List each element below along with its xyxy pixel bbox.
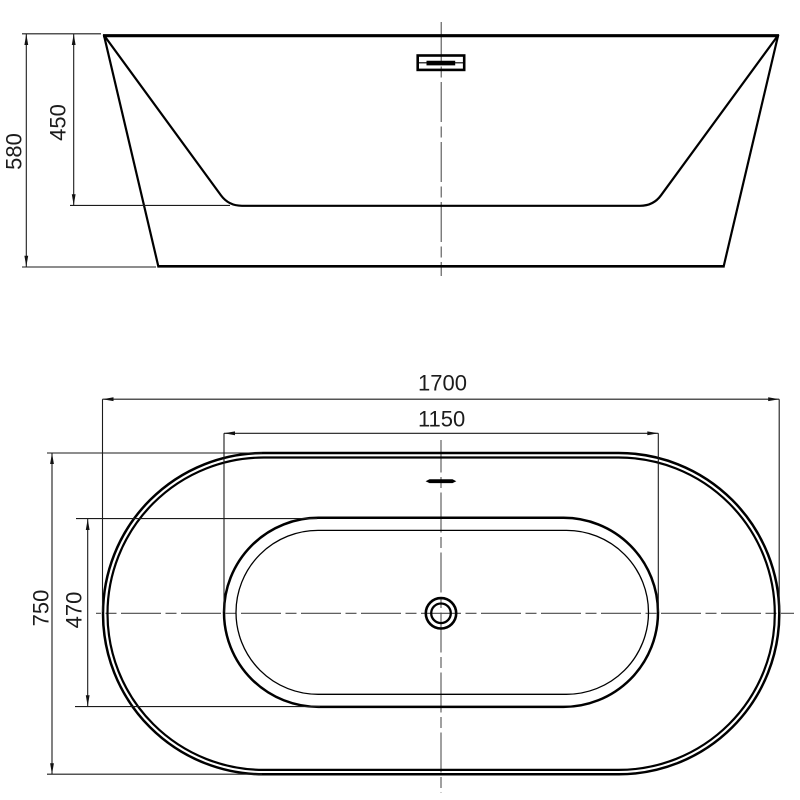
svg-text:470: 470 (62, 592, 87, 629)
svg-text:580: 580 (2, 133, 27, 170)
svg-text:750: 750 (29, 590, 54, 627)
svg-text:1150: 1150 (418, 407, 465, 432)
svg-text:450: 450 (46, 104, 71, 141)
svg-text:1700: 1700 (418, 371, 467, 396)
